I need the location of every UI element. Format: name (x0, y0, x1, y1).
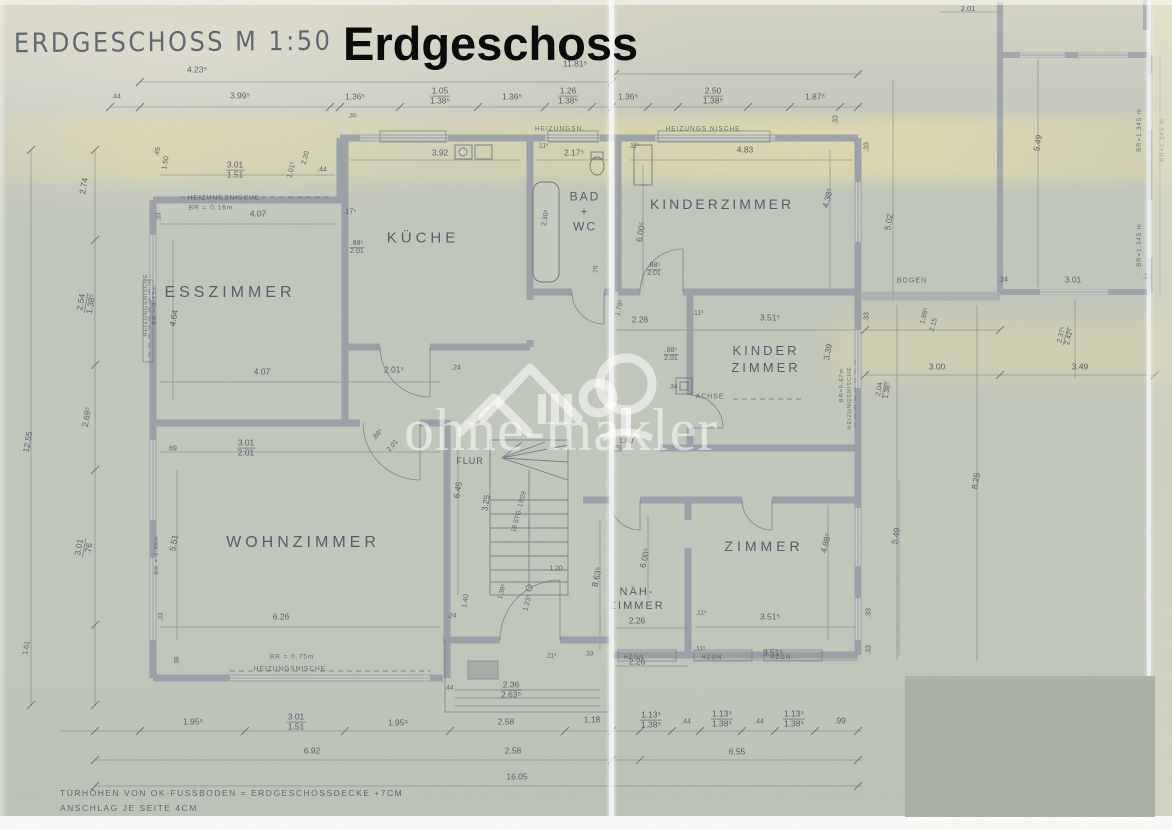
dimension-label: 2.58 (498, 718, 515, 727)
text-label: HEIZUNGSN. (535, 127, 585, 134)
dimension-label: 8.25 (970, 472, 982, 490)
dimension-label: .76 (594, 265, 601, 274)
dimension-label: .11⁵ (694, 647, 705, 654)
text-label: HEIZUNGS NISCHE (666, 127, 741, 134)
dimension-label: .33 (865, 645, 872, 655)
room-label-kueche: KÜCHE (387, 230, 460, 247)
dimension-label: 3.39 (822, 343, 834, 361)
dimension-label: .33 (832, 115, 839, 125)
dimension-label: .11⁵ (628, 144, 639, 151)
dimension-label: .44 (754, 718, 764, 725)
dimension-label: 2.26 (632, 316, 649, 325)
dimension-label: 2.58 (505, 747, 522, 756)
dimension-label: 2.362.63⁵ (501, 681, 521, 700)
dimension-label: 1.88⁵ (919, 307, 930, 325)
dimension-label: 2.26 (629, 617, 646, 626)
scan-edge-bottom (0, 816, 1172, 830)
dimension-label: .33 (159, 612, 166, 621)
dimension-label: 4.23⁵ (187, 66, 207, 75)
page-title-handwritten: ERDGESCHOSS M 1:50 (14, 25, 333, 59)
dimension-label: 18 STG. 17/28 (511, 491, 529, 534)
dimension-label: 3.25 (480, 494, 492, 512)
footer-note-door-heights: TÜRHÖHEN VON OK-FUSSBODEN = ERDGESCHOSSD… (60, 788, 403, 798)
dimension-label: 2.15 (929, 317, 940, 332)
dimension-label: .44 (444, 686, 453, 693)
dimension-label: 6.92 (304, 747, 321, 756)
dimension-label: 2.69⁵ (81, 406, 93, 427)
dimension-label: 6.55 (729, 748, 746, 757)
adjacent-page-strip (1152, 0, 1172, 816)
dimension-label: 2.041.38⁵ (875, 380, 893, 399)
dimension-label: .33 (865, 608, 872, 618)
dimension-label: .24 (447, 614, 456, 621)
dimension-label: 1.40 (461, 594, 471, 609)
dimension-label: .44 (681, 718, 691, 725)
dimension-label: 2.20 (301, 150, 312, 165)
dimension-label: .24 (998, 276, 1008, 283)
dimension-label: 2.30⁵ (541, 209, 551, 227)
footer-note-anschlag: ANSCHLAG JE SEITE 4CM (60, 803, 198, 813)
room-label-kinderzimmer: KINDERZIMMER (650, 196, 794, 212)
dimension-label: 3.01 (1065, 276, 1082, 285)
dimension-label: 1.051.38⁵ (430, 87, 450, 106)
dimension-label: 1.20 (549, 565, 563, 572)
text-label: HZGN. (770, 655, 794, 661)
dimension-label: .88⁵2.01 (647, 262, 662, 278)
dimension-label: 1.95⁵ (183, 718, 203, 727)
text-label: HEIZUNGSNISCHE (144, 273, 150, 336)
text-label: HZGN (702, 655, 723, 661)
dimension-label: 3.92 (432, 149, 449, 158)
dimension-label: 3.51⁵ (760, 314, 780, 323)
dimension-label: .88⁵2.01 (350, 240, 365, 256)
dimension-label: .33 (863, 312, 870, 322)
text-label: HEIZUNGSNISCHE (848, 366, 854, 429)
dimension-label: .17⁵ (344, 208, 357, 215)
room-label-naehzimmer: NÄH-ZIMMER (609, 585, 664, 613)
dimension-label: 6.26 (273, 613, 290, 622)
text-label: BR = 0.75m (270, 655, 315, 662)
dimension-label: 1.13⁵1.38⁵ (711, 710, 733, 729)
text-label: BR=0.67m (840, 368, 846, 402)
dimension-label: 3.51⁵ (760, 613, 780, 622)
dimension-label: 3.49 (1072, 363, 1089, 372)
page-title-overlay: Erdgeschoss (343, 16, 638, 71)
text-label: BR = 0.83m (153, 285, 159, 324)
dimension-label: 3.99⁵ (230, 92, 250, 101)
text-label: HEIZUNGSNISCHE (188, 196, 260, 203)
dimension-label: 2.501.38⁵ (703, 87, 723, 106)
dimension-label: 5.51 (168, 534, 180, 552)
text-label: HEIZUNGSNISCHE (254, 667, 326, 674)
watermark-text: ohne-makler (404, 396, 718, 465)
text-label: BR = 0.16m (189, 206, 234, 213)
room-label-wohnzimmer: WOHNZIMMER (226, 534, 380, 552)
dimension-label: 1.13⁵1.38⁵ (783, 710, 805, 729)
scan-edge-left (0, 0, 7, 830)
dimension-label: 4.38⁵ (821, 187, 835, 209)
dimension-label: 1.50 (161, 156, 171, 171)
dimension-label: .11⁵ (537, 144, 548, 151)
dimension-label: 1.13⁵1.38⁵ (640, 711, 662, 730)
dimension-label: 1.36⁵ (345, 93, 365, 102)
text-label: BR=1.345 m (1137, 108, 1143, 152)
dimension-label: .44 (317, 166, 327, 173)
dimension-label: .11⁵ (695, 611, 706, 618)
dimension-label: 1.23⁵ (522, 594, 533, 612)
dimension-label: .88⁵ (371, 428, 385, 442)
dimension-label: 3.012.01 (237, 439, 256, 458)
dimension-label: 1.261.38⁵ (558, 87, 578, 106)
dimension-label: .11⁵ (692, 311, 703, 318)
dimension-label: .44 (111, 93, 121, 100)
text-label: BR=1.345 m (1137, 223, 1143, 267)
dimension-label: .45 (154, 147, 163, 158)
dimension-label: 5.49 (1032, 134, 1044, 152)
dimension-label: 1.01⁵ (286, 161, 297, 179)
floorplan-scan: 4.23⁵11.81⁵.443.99⁵1.36⁵1.051.38⁵1.36⁵1.… (0, 0, 1172, 830)
dimension-label: .38 (175, 656, 182, 665)
dimension-label: 1.79⁵ (614, 299, 625, 317)
dimension-label: 5.02 (883, 213, 895, 231)
dimension-label: 2.37⁵2.42⁵ (1056, 325, 1076, 347)
dimension-label: 3.011.51 (287, 713, 306, 732)
dimension-label: 12.55 (22, 431, 34, 454)
dimension-label: 8.63⁵ (591, 566, 604, 587)
room-label-esszimmer: ESSZIMMER (164, 284, 295, 302)
dimension-label: .11⁵ (545, 654, 556, 661)
dimension-label: 6.00⁵ (635, 221, 647, 242)
dimension-label: .30 (347, 114, 356, 121)
dimension-label: .33 (584, 652, 593, 659)
dimension-label: 1.87⁵ (805, 93, 825, 102)
dimension-label: 2.17⁵ (564, 149, 584, 158)
dimension-label: 1.61 (22, 641, 32, 656)
redacted-area (905, 676, 1155, 817)
dimension-label: 4.88⁵ (819, 532, 833, 554)
text-label: BOGEN (897, 277, 927, 284)
text-label: BR = 1.88m (155, 535, 161, 574)
dimension-label: 1.95⁵ (388, 719, 408, 728)
dimension-label: 3.011.51 (226, 161, 245, 180)
dimension-label: 3.00 (929, 363, 946, 372)
dimension-label: 4.64 (168, 309, 180, 327)
dimension-label: 4.07 (254, 368, 271, 377)
room-label-zimmer: ZIMMER (724, 538, 803, 554)
dimension-label: 4.83 (737, 146, 754, 155)
dimension-label: 3.01.76 (73, 537, 95, 559)
dimension-label: 1.36⁵ (502, 93, 522, 102)
dimension-label: 2.541.38⁵ (75, 291, 97, 314)
dimension-label: 16.05 (506, 773, 527, 782)
dimension-label: .33 (157, 212, 164, 221)
dimension-label: .33 (863, 142, 870, 152)
room-label-bad-wc: BAD+WC (570, 190, 601, 235)
dimension-label: 1.18 (584, 716, 601, 725)
dimension-label: 2.74 (78, 177, 90, 195)
dimension-label: 1.38⁵ (498, 584, 509, 601)
text-label: HZGN (624, 655, 645, 661)
dimension-label: .69 (167, 445, 177, 452)
dimension-label: 1.36⁵ (618, 93, 638, 102)
scan-edge-top (0, 0, 1172, 5)
dimension-label: .99 (834, 717, 846, 726)
dimension-label: 6.00⁵ (639, 547, 652, 568)
dimension-label: 5.49 (890, 527, 902, 545)
dimension-label: 2.01 (961, 5, 976, 13)
watermark: ohne-makler (398, 338, 798, 488)
dimension-label: 4.07 (250, 210, 267, 219)
